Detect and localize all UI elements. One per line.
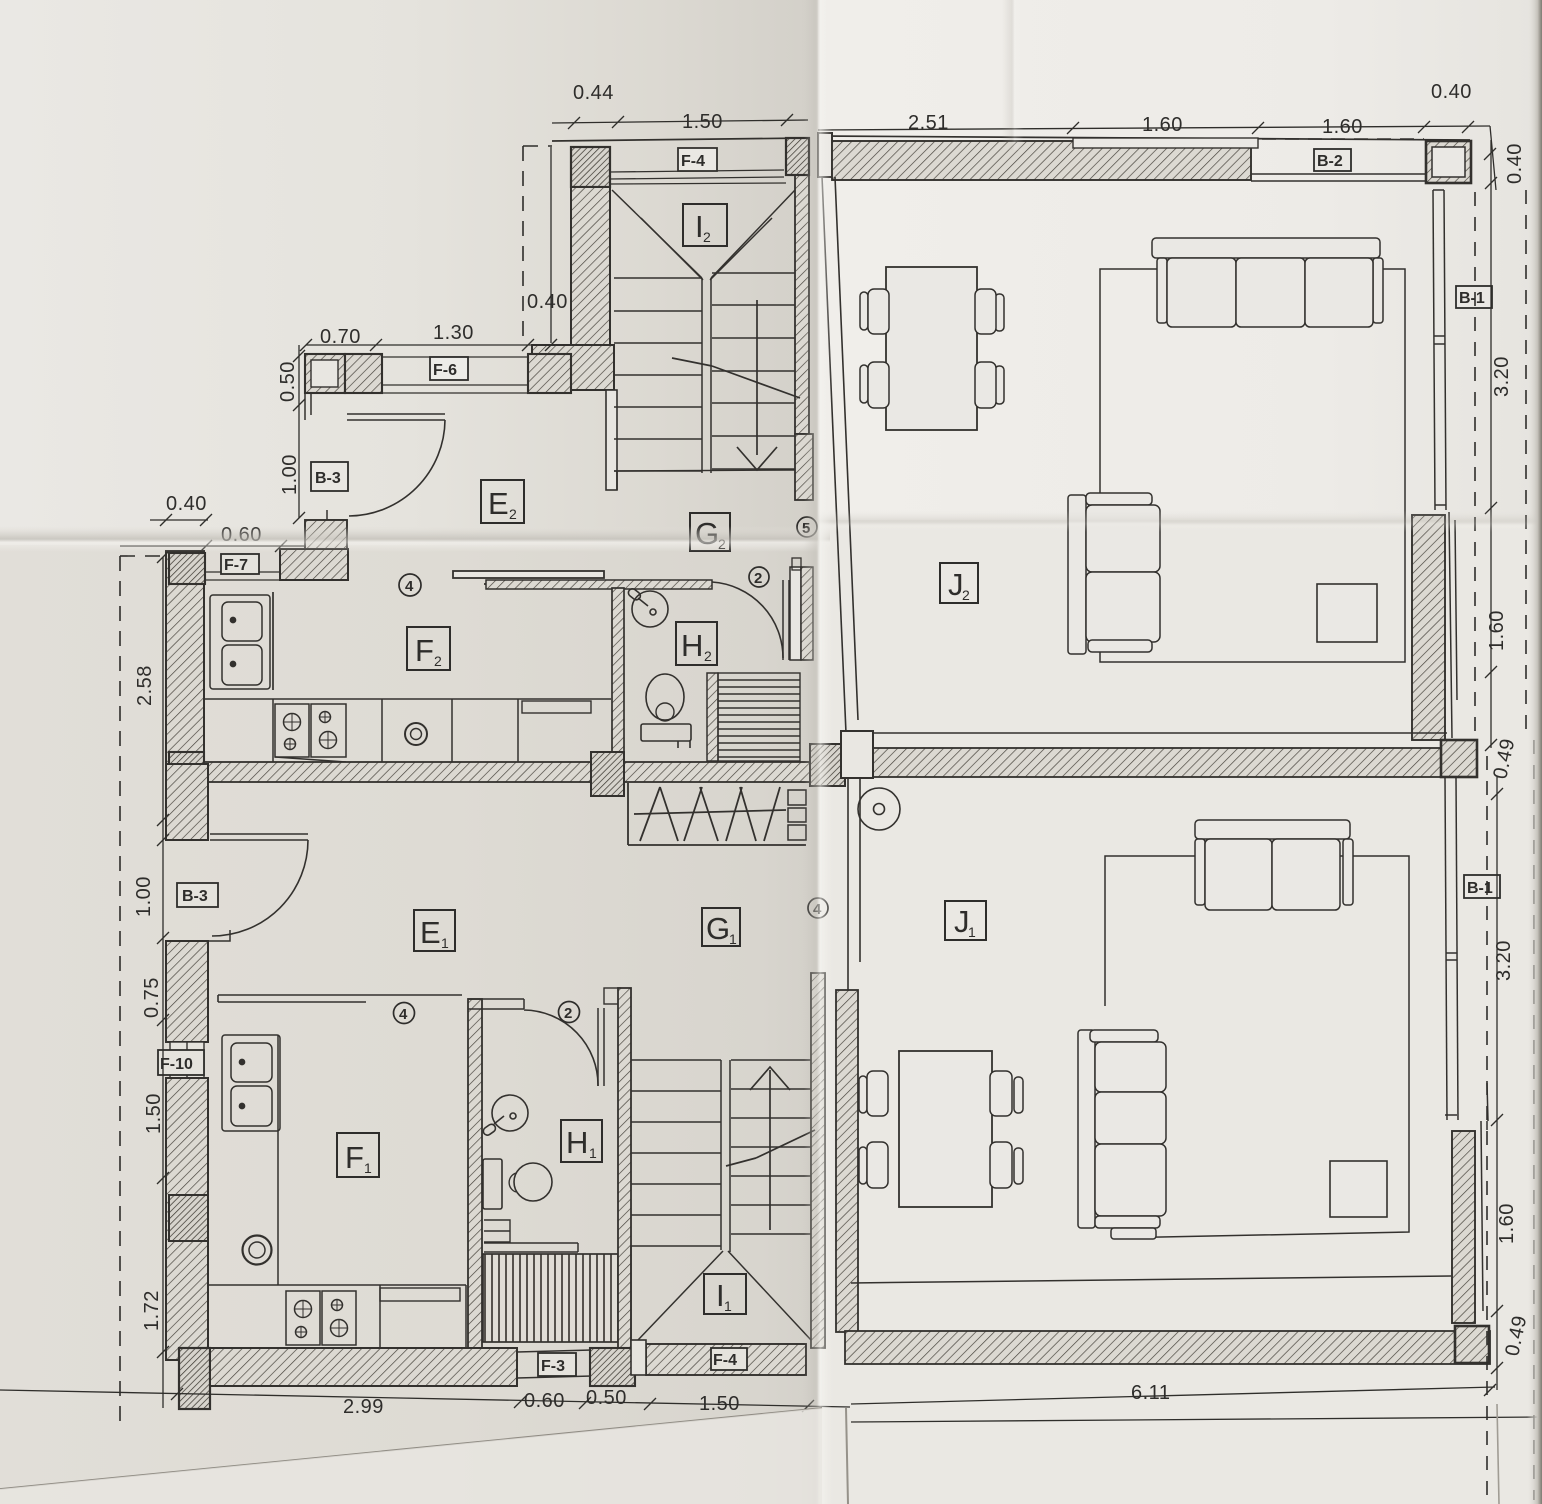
- svg-text:G: G: [706, 911, 730, 946]
- svg-text:B-1: B-1: [1459, 290, 1485, 307]
- svg-text:F-7: F-7: [224, 557, 248, 574]
- svg-text:F-10: F-10: [160, 1056, 193, 1073]
- svg-text:3.20: 3.20: [1491, 356, 1513, 397]
- svg-text:E: E: [420, 915, 441, 950]
- svg-text:2.58: 2.58: [134, 665, 156, 706]
- svg-text:2: 2: [509, 506, 517, 522]
- svg-text:1.00: 1.00: [279, 454, 301, 495]
- svg-text:0.40: 0.40: [166, 493, 207, 515]
- svg-text:1.60: 1.60: [1142, 114, 1183, 136]
- svg-text:4: 4: [405, 578, 414, 595]
- svg-text:1: 1: [724, 1298, 732, 1314]
- svg-text:F-4: F-4: [681, 153, 705, 170]
- svg-text:2: 2: [703, 229, 711, 245]
- svg-text:2: 2: [434, 653, 442, 669]
- svg-text:1.00: 1.00: [133, 876, 155, 917]
- svg-text:0.44: 0.44: [573, 82, 614, 104]
- svg-text:0.50: 0.50: [277, 361, 299, 402]
- svg-text:F-4: F-4: [713, 1352, 737, 1369]
- svg-text:E: E: [488, 486, 509, 521]
- svg-text:2: 2: [754, 570, 762, 587]
- svg-text:4: 4: [399, 1006, 408, 1023]
- svg-text:2: 2: [564, 1005, 572, 1022]
- svg-text:0.75: 0.75: [141, 977, 163, 1018]
- svg-text:0.40: 0.40: [1504, 143, 1526, 184]
- svg-text:2.51: 2.51: [908, 112, 949, 134]
- svg-text:1.60: 1.60: [1496, 1203, 1518, 1244]
- svg-text:3.20: 3.20: [1493, 940, 1515, 981]
- svg-text:H: H: [566, 1125, 588, 1160]
- svg-text:B-2: B-2: [1317, 153, 1343, 170]
- svg-text:2: 2: [962, 587, 970, 603]
- svg-text:F-6: F-6: [433, 362, 457, 379]
- svg-text:1.50: 1.50: [143, 1093, 165, 1134]
- svg-text:H: H: [681, 628, 703, 663]
- svg-text:0.40: 0.40: [527, 291, 568, 313]
- svg-text:0.50: 0.50: [586, 1387, 627, 1409]
- svg-text:1.50: 1.50: [699, 1393, 740, 1415]
- svg-text:1: 1: [589, 1145, 597, 1161]
- svg-text:1: 1: [441, 935, 449, 951]
- svg-text:0.70: 0.70: [320, 326, 361, 348]
- svg-text:1.60: 1.60: [1322, 116, 1363, 138]
- svg-text:F: F: [415, 633, 434, 668]
- svg-text:F-3: F-3: [541, 1358, 565, 1375]
- svg-text:B-1: B-1: [1467, 880, 1493, 897]
- svg-text:1.30: 1.30: [433, 322, 474, 344]
- svg-text:2: 2: [704, 648, 712, 664]
- svg-text:0.40: 0.40: [1431, 81, 1472, 103]
- svg-text:0.60: 0.60: [524, 1390, 565, 1412]
- svg-text:6.11: 6.11: [1131, 1382, 1170, 1404]
- svg-text:1.60: 1.60: [1486, 610, 1508, 651]
- svg-text:1: 1: [729, 931, 737, 947]
- svg-text:1: 1: [968, 924, 976, 940]
- svg-text:2.99: 2.99: [343, 1396, 384, 1418]
- svg-text:F: F: [345, 1140, 364, 1175]
- svg-text:1.50: 1.50: [682, 111, 723, 133]
- svg-text:1: 1: [364, 1160, 372, 1176]
- svg-text:1.72: 1.72: [141, 1290, 163, 1331]
- svg-text:B-3: B-3: [182, 888, 208, 905]
- svg-text:B-3: B-3: [315, 470, 341, 487]
